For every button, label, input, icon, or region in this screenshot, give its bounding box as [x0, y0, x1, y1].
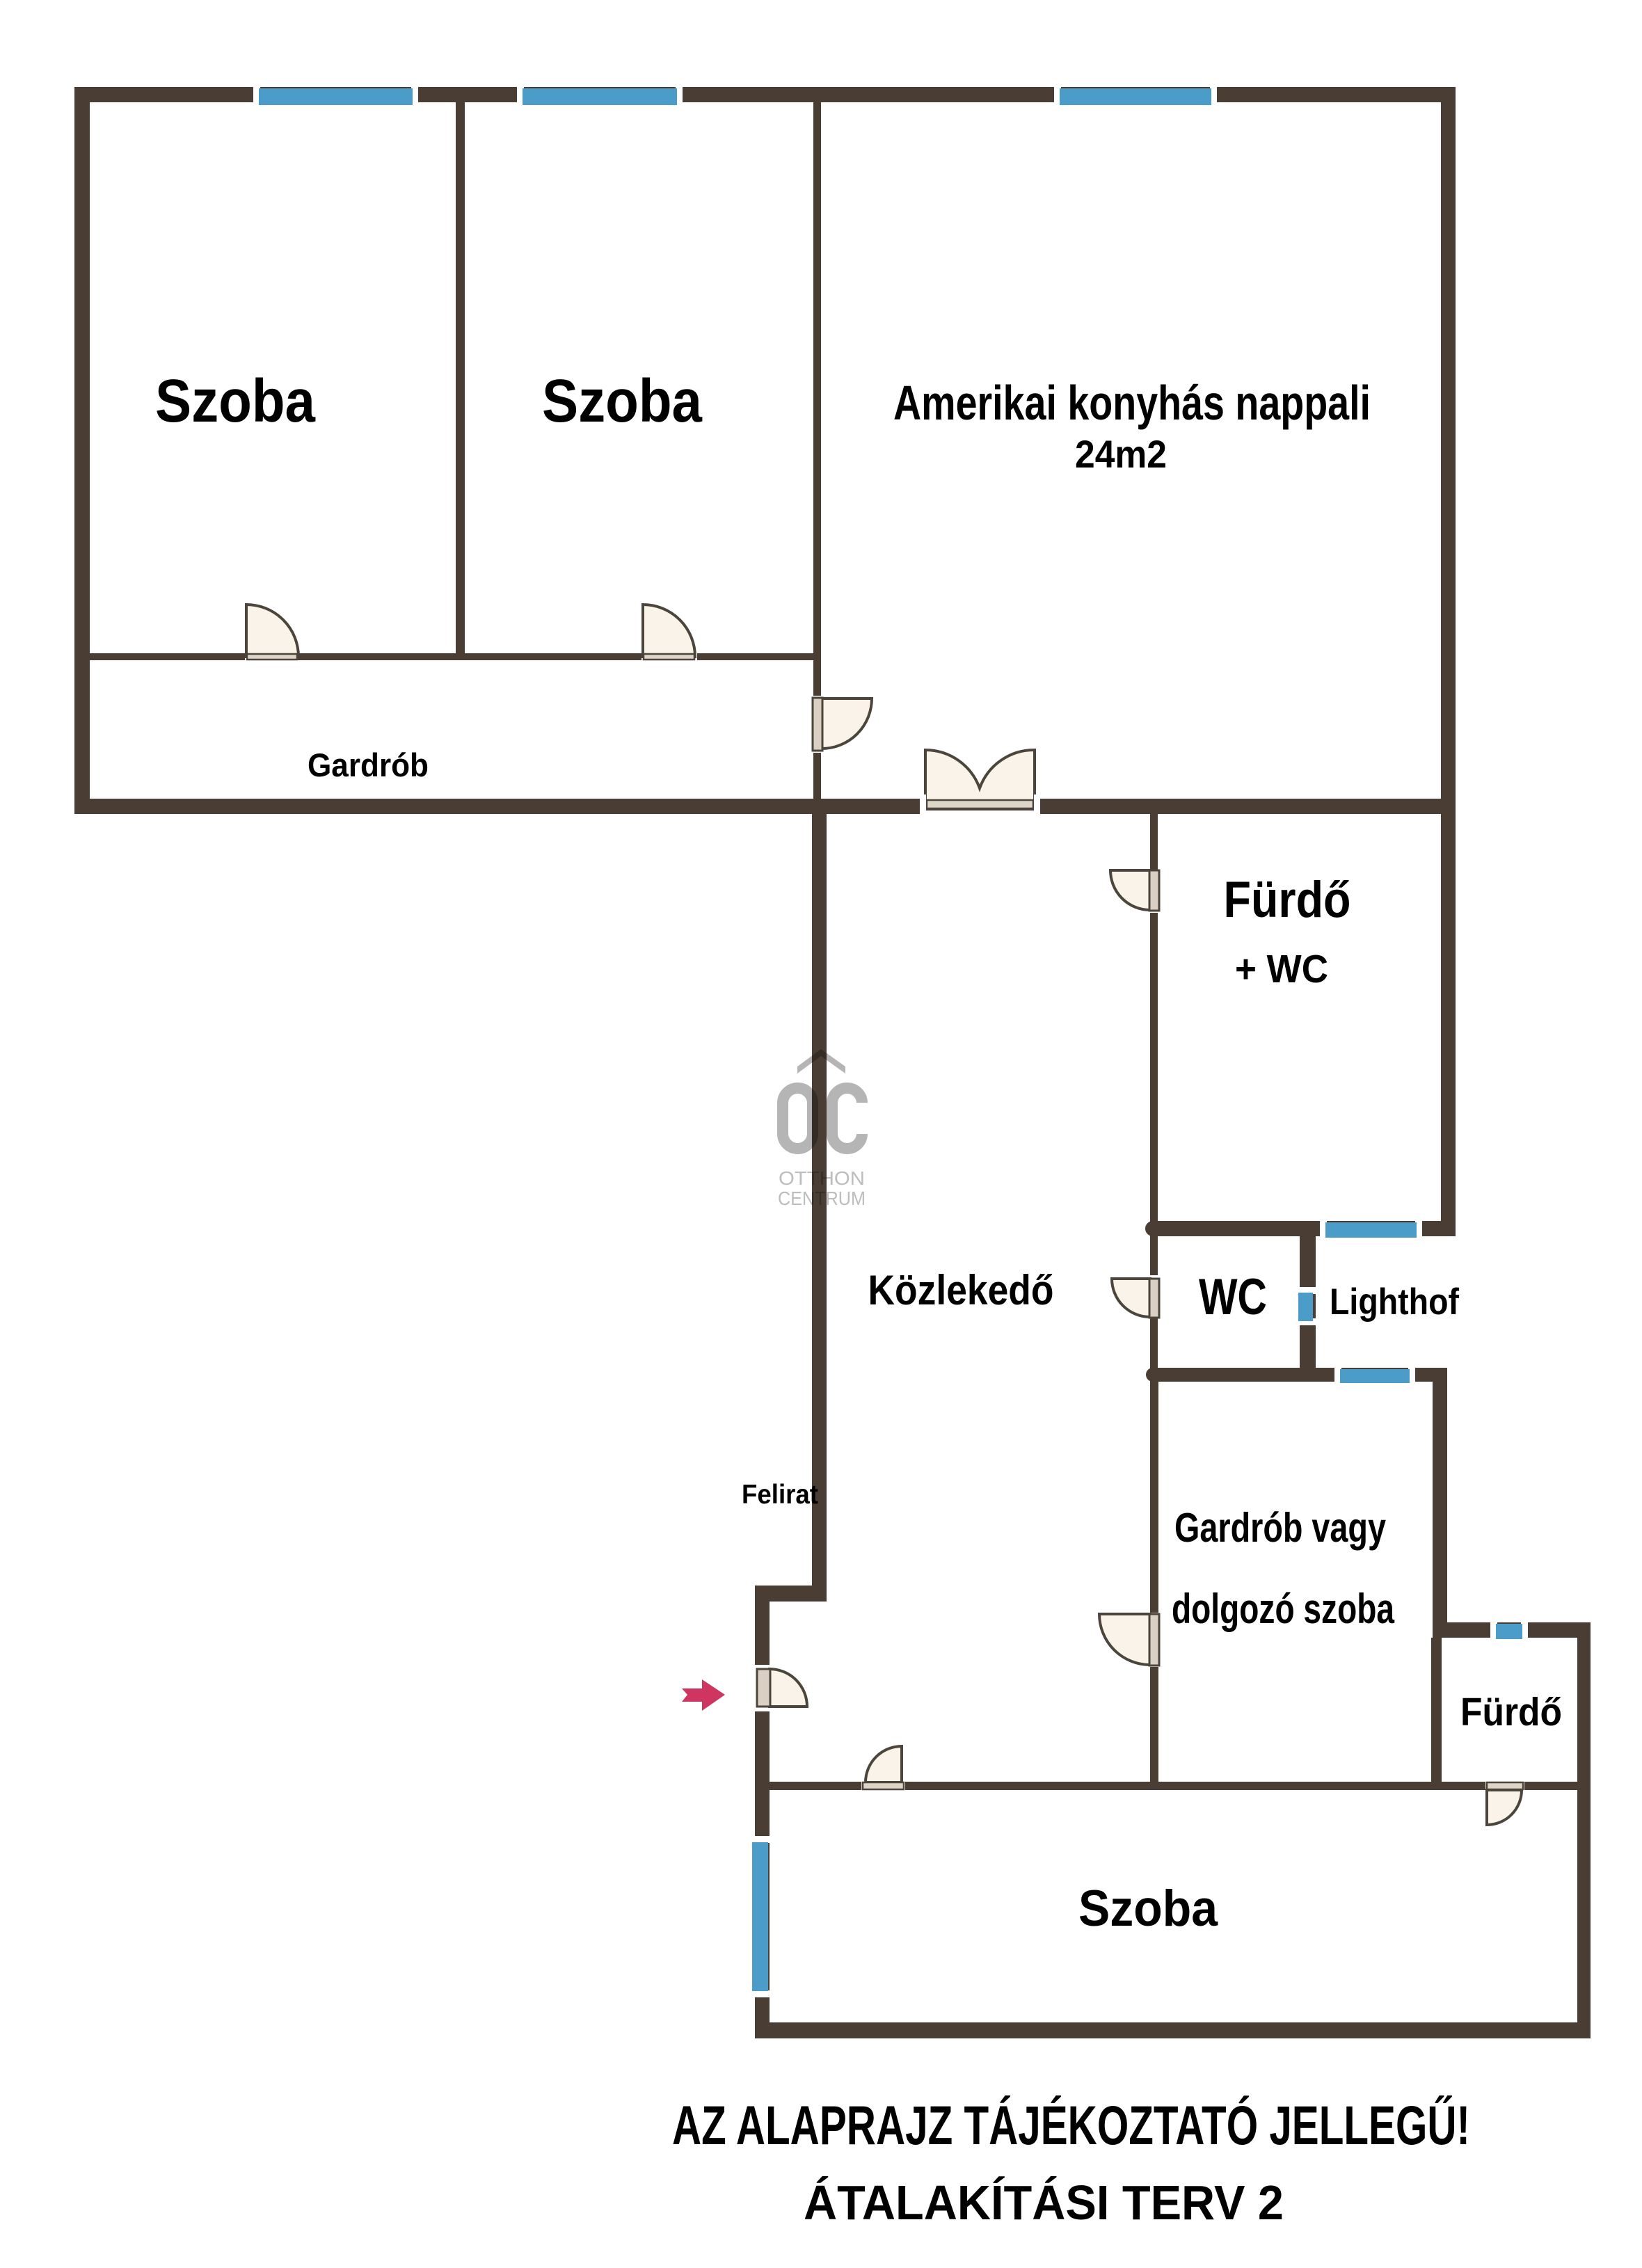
svg-text:Fürdő: Fürdő [1460, 1690, 1562, 1734]
svg-text:ÁTALAKÍTÁSI TERV 2: ÁTALAKÍTÁSI TERV 2 [804, 2175, 1284, 2230]
svg-text:Szoba: Szoba [1078, 1880, 1218, 1937]
svg-text:24m2: 24m2 [1075, 432, 1167, 476]
svg-text:Amerikai konyhás nappali: Amerikai konyhás nappali [893, 376, 1371, 430]
svg-text:CENTRUM: CENTRUM [778, 1188, 866, 1209]
svg-text:Szoba: Szoba [542, 367, 703, 435]
svg-text:Fürdő: Fürdő [1224, 872, 1351, 928]
svg-text:Gardrób vagy: Gardrób vagy [1174, 1505, 1386, 1551]
svg-text:Közlekedő: Közlekedő [868, 1267, 1054, 1313]
svg-text:Lighthof: Lighthof [1330, 1281, 1459, 1323]
svg-text:Szoba: Szoba [155, 367, 316, 435]
svg-text:Felirat: Felirat [742, 1480, 818, 1510]
svg-text:Gardrób: Gardrób [308, 746, 429, 783]
svg-text:+ WC: + WC [1235, 947, 1328, 991]
svg-text:AZ ALAPRAJZ TÁJÉKOZTATÓ JELLEG: AZ ALAPRAJZ TÁJÉKOZTATÓ JELLEGŰ! [672, 2094, 1470, 2156]
svg-text:WC: WC [1199, 1269, 1267, 1325]
svg-text:dolgozó szoba: dolgozó szoba [1172, 1586, 1394, 1632]
svg-text:OTTHON: OTTHON [779, 1167, 865, 1189]
